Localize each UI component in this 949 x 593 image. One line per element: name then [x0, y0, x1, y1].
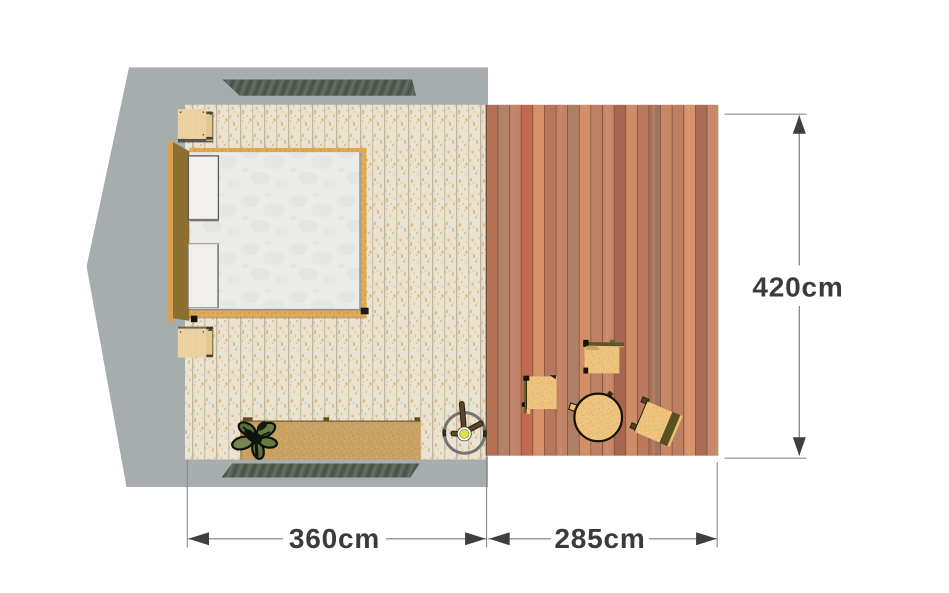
svg-text:285cm: 285cm [554, 523, 645, 554]
svg-text:420cm: 420cm [752, 272, 843, 303]
svg-text:360cm: 360cm [289, 523, 380, 554]
